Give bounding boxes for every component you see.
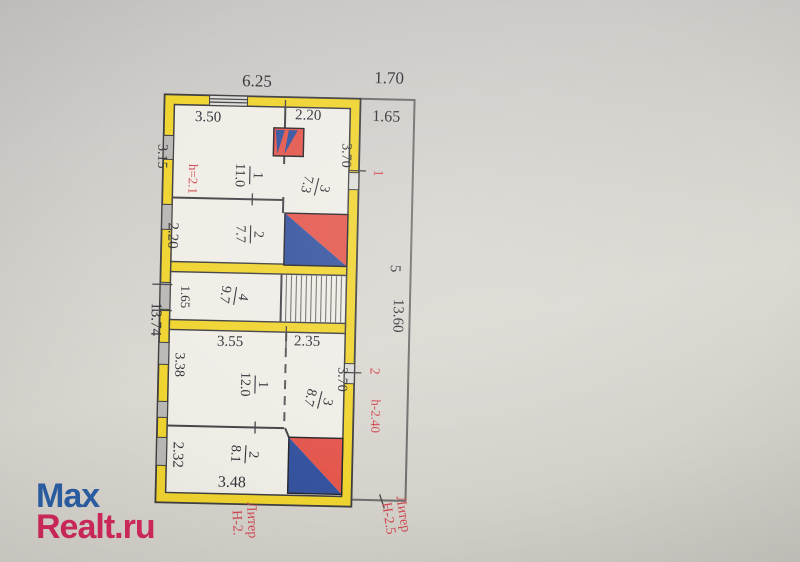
dim-corridor-depth: 1.65 xyxy=(178,285,194,308)
caption-bottom-center: Литер Н-2. xyxy=(228,502,260,540)
svg-text:1: 1 xyxy=(250,172,265,179)
unit2-number-red: 2 xyxy=(366,367,381,374)
unit1-height-note: h=2.1 xyxy=(185,164,201,194)
dim-u1-room3-width: 2.20 xyxy=(295,107,322,124)
dim-annex-top-width: 1.70 xyxy=(374,68,404,88)
window-left-u2c-icon xyxy=(156,437,167,465)
dim-top-width: 6.25 xyxy=(242,71,272,91)
svg-text:11.0: 11.0 xyxy=(232,163,248,187)
annex-room-number: 5 xyxy=(387,265,403,273)
watermark: Max Realt.ru xyxy=(36,481,155,544)
svg-text:9.7: 9.7 xyxy=(216,284,234,304)
stove-unit2-icon xyxy=(288,437,343,494)
unit1-number-red: 1 xyxy=(370,170,385,177)
svg-text:Н-2.: Н-2. xyxy=(229,510,245,536)
window-left-u2a-icon xyxy=(159,342,169,364)
scanned-floor-plan-photo: 6.25 1.70 1.65 13.74 13.60 5 3.50 2.20 3… xyxy=(0,0,800,562)
dim-u1-room2-depth: 2.20 xyxy=(164,222,181,249)
unit2-height-note: h-2.40 xyxy=(368,399,384,433)
dim-right-length: 13.60 xyxy=(389,299,406,333)
dim-u1-room1-depth: 3.15 xyxy=(154,144,170,169)
window-right-u1-icon xyxy=(349,173,359,190)
window-left-u2b-icon xyxy=(157,401,167,417)
dim-u2-room3-width: 2.35 xyxy=(294,333,321,350)
stove-unit1-icon xyxy=(284,213,348,266)
dim-u1-room3-depth: 3.70 xyxy=(338,143,354,168)
dim-u2-room2-width: 3.48 xyxy=(218,474,246,492)
furnace-small-icon xyxy=(273,128,304,157)
floor-plan-drawing: 6.25 1.70 1.65 13.74 13.60 5 3.50 2.20 3… xyxy=(0,0,800,562)
window-top-icon xyxy=(209,95,247,106)
svg-text:7.7: 7.7 xyxy=(232,225,247,243)
dim-annex-top-depth: 1.65 xyxy=(372,108,400,126)
dim-u2-room3-depth: 3.70 xyxy=(334,367,350,392)
svg-text:2: 2 xyxy=(250,231,265,238)
svg-text:12.0: 12.0 xyxy=(237,372,253,397)
svg-text:2: 2 xyxy=(245,451,260,459)
dim-u1-room1-width: 3.50 xyxy=(195,109,222,126)
svg-text:1: 1 xyxy=(255,381,270,388)
watermark-line2: Realt.ru xyxy=(36,512,155,543)
dim-left-length: 13.74 xyxy=(147,302,164,337)
dim-u2-room1-depth: 3.38 xyxy=(171,352,187,377)
dim-u2-room2-depth: 2.32 xyxy=(169,441,186,468)
svg-text:8.1: 8.1 xyxy=(227,444,243,462)
dim-u2-room1-width: 3.55 xyxy=(217,334,244,351)
svg-text:Литер: Литер xyxy=(243,502,260,539)
